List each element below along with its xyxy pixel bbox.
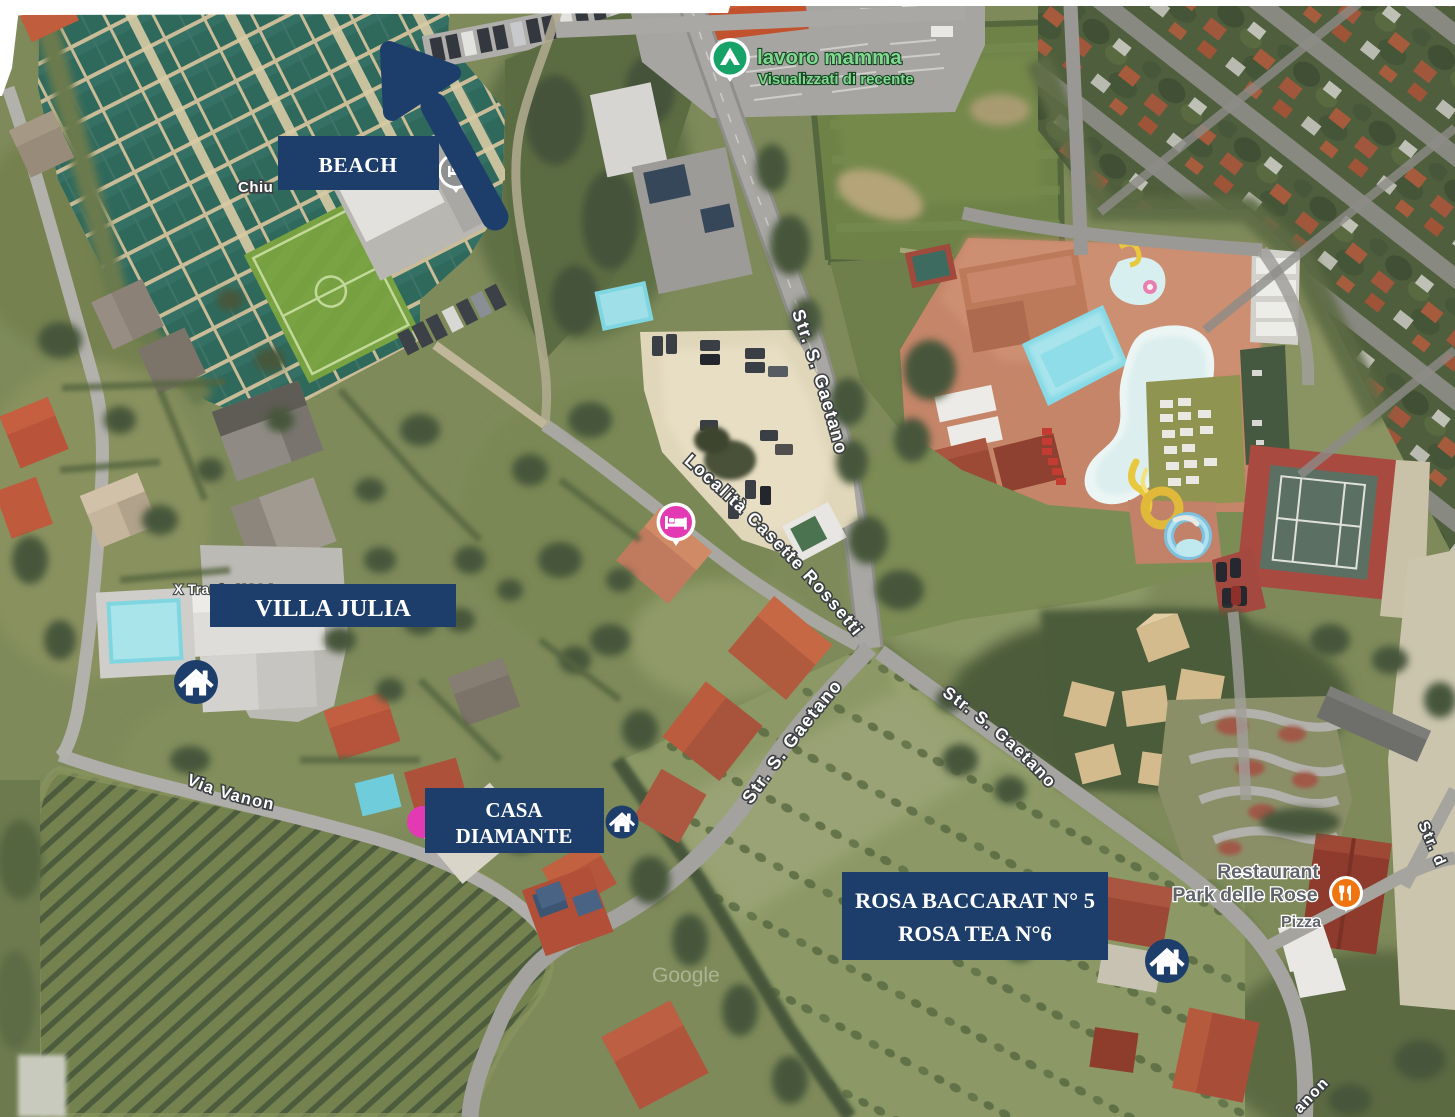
svg-text:Chiu: Chiu	[238, 179, 273, 196]
svg-text:ROSA BACCARAT N° 5: ROSA BACCARAT N° 5	[855, 888, 1095, 913]
svg-text:Visualizzati di recente: Visualizzati di recente	[758, 71, 914, 88]
svg-text:ROSA TEA N°6: ROSA TEA N°6	[898, 921, 1052, 946]
svg-text:Google: Google	[652, 964, 720, 987]
svg-text:CASA: CASA	[485, 798, 543, 822]
svg-text:Restaurant: Restaurant	[1217, 861, 1319, 883]
svg-text:VILLA JULIA: VILLA JULIA	[255, 595, 411, 622]
svg-text:BEACH: BEACH	[319, 153, 398, 177]
svg-text:DIAMANTE: DIAMANTE	[456, 824, 573, 848]
svg-text:Pizza: Pizza	[1281, 914, 1321, 931]
svg-text:Park delle Rose: Park delle Rose	[1172, 884, 1317, 906]
svg-text:lavoro mamma: lavoro mamma	[757, 46, 902, 69]
